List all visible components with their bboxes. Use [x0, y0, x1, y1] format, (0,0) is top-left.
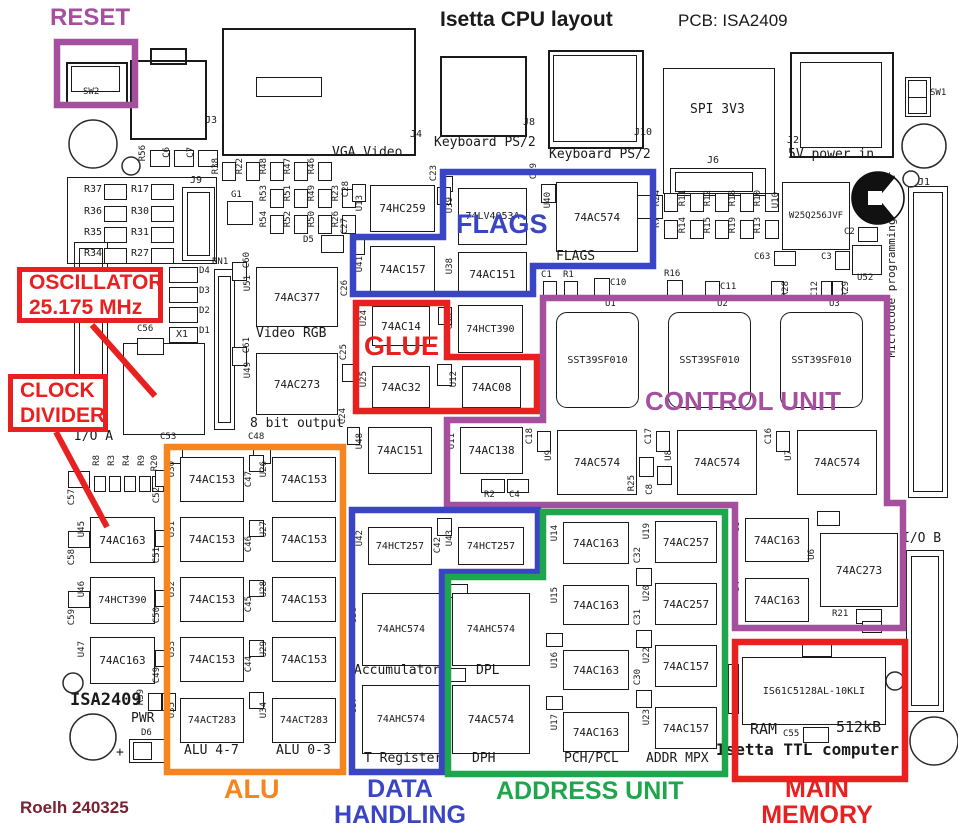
silkscreen-text: R24 [653, 190, 662, 206]
silkscreen-text: C6 [163, 147, 172, 158]
silkscreen-text: R16 [664, 270, 680, 279]
region-label-line: ALU [224, 775, 280, 803]
silkscreen-text: R31 [131, 228, 149, 239]
chip-part-label: 74AHC574 [377, 624, 425, 635]
silkscreen-text: C32 [634, 547, 643, 563]
silkscreen-text: D2 [199, 307, 210, 316]
mounting-hole [902, 124, 946, 168]
silkscreen-text: C48 [248, 433, 264, 442]
chip-part-label: 74AC163 [754, 534, 800, 547]
silkscreen-text: C50 [153, 607, 162, 623]
chip-part-label: IS61C5128AL-10KLI [763, 686, 865, 697]
chip-part-label: 74AC574 [468, 713, 514, 726]
chip-u35: 74ACT283 [180, 698, 244, 743]
silkscreen-text: FLAGS [556, 250, 595, 264]
silkscreen-text: U19 [643, 523, 652, 539]
chip-u29: 74AC153 [272, 637, 336, 682]
silkscreen-text: C8 [646, 484, 655, 495]
pcb-layout-diagram: Isetta CPU layout PCB: ISA2409 Roelh 240… [0, 0, 958, 838]
silkscreen-text: U36 [350, 607, 359, 623]
silkscreen-text: R4 [123, 455, 132, 466]
passive-component [169, 287, 198, 303]
silkscreen-text: C7 [187, 147, 196, 158]
chip-u22: 74AC157 [655, 645, 717, 687]
silkscreen-text: R13 [754, 217, 763, 233]
passive-component [137, 338, 164, 355]
silkscreen-text: U33 [168, 641, 177, 657]
connector-outline [123, 343, 205, 435]
chip-u11: 74AC138 [460, 427, 523, 474]
chip-part-label: 74AC273 [836, 564, 882, 577]
silkscreen-text: U6 [808, 549, 817, 560]
silkscreen-text: T Register [364, 752, 442, 766]
passive-component [656, 431, 670, 452]
silkscreen-text: U35 [168, 702, 177, 718]
silkscreen-text: C26 [341, 280, 350, 296]
chip-u45: 74AC163 [90, 517, 155, 563]
chip-part-label: 74AC163 [99, 654, 145, 667]
silkscreen-text: J6 [707, 156, 719, 167]
callout-line: CLOCK [20, 378, 96, 403]
passive-component [715, 220, 729, 239]
chip-part-label: 74AC163 [573, 599, 619, 612]
silkscreen-text: C46 [245, 536, 254, 552]
silkscreen-text: X1 [176, 330, 188, 341]
silkscreen-text: R7 [653, 217, 662, 228]
region-label-reset: RESET [50, 5, 130, 30]
silkscreen-text: R53 [260, 185, 269, 201]
silkscreen-text: C2 [844, 228, 855, 237]
silkscreen-text: U2 [717, 300, 728, 309]
chip-u26: 74AC153 [272, 457, 336, 502]
silkscreen-text: R25 [628, 475, 637, 491]
chip-u18: 74AHC574 [452, 593, 530, 666]
region-label-address-unit: ADDRESS UNIT [496, 778, 684, 804]
passive-component [151, 184, 174, 200]
chip-u40: 74AC574 [556, 182, 638, 252]
silkscreen-text: C29 [530, 163, 539, 179]
silkscreen-text: R47 [284, 158, 293, 174]
silkscreen-text: C3 [821, 253, 832, 262]
passive-component [109, 476, 121, 492]
silkscreen-text: R1 [563, 271, 574, 280]
chip-u8: 74AC574 [677, 430, 757, 495]
region-label-data-handling: DATAHANDLING [330, 776, 470, 829]
callout-oscillator: OSCILLATOR25.175 MHz [17, 267, 163, 323]
page-title: Isetta CPU layout [440, 8, 613, 32]
passive-component [546, 696, 563, 710]
chip-part-label: 74ACT283 [188, 715, 236, 726]
region-label-line: CONTROL UNIT [645, 388, 841, 415]
silkscreen-text: U25 [360, 371, 369, 387]
silkscreen-text: I/O B [902, 532, 941, 546]
mounting-hole [70, 714, 116, 760]
passive-component [690, 220, 704, 239]
chip-part-label: 74AC153 [189, 533, 235, 546]
silkscreen-text: U46 [78, 581, 87, 597]
silkscreen-text: C31 [634, 609, 643, 625]
silkscreen-text: R51 [284, 185, 293, 201]
connector-outline [218, 276, 231, 423]
passive-component [639, 457, 654, 477]
passive-component [657, 466, 672, 485]
silkscreen-text: C53 [160, 433, 176, 442]
silkscreen-text: U48 [356, 433, 365, 449]
chip-part-label: 74AC153 [189, 653, 235, 666]
region-label-line: DATA [330, 776, 470, 802]
silkscreen-text: + [116, 746, 124, 760]
passive-component [543, 281, 557, 296]
silkscreen-text: I/O A [74, 430, 113, 444]
silkscreen-text: ALU 0-3 [276, 744, 331, 758]
passive-component [690, 193, 704, 212]
chip-u50: 74HCT390 [458, 305, 523, 353]
passive-component [802, 643, 832, 657]
chip-part-label: 74AC273 [274, 378, 320, 391]
silkscreen-text: SW2 [83, 88, 99, 97]
silkscreen-text: R39 [137, 689, 146, 705]
silkscreen-text: C57 [68, 489, 77, 505]
passive-component [858, 227, 878, 242]
silkscreen-text: C55 [783, 730, 799, 739]
connector-outline [150, 48, 187, 65]
silkscreen-text: DPH [472, 752, 495, 766]
passive-component [270, 189, 284, 208]
chip-u32: 74AC153 [180, 577, 244, 622]
passive-component [667, 280, 683, 299]
callout-line: OSCILLATOR [29, 270, 151, 295]
silkscreen-text: DPL [476, 664, 499, 678]
connector-outline [800, 62, 882, 148]
passive-component [852, 245, 882, 275]
silkscreen-text: U47 [78, 641, 87, 657]
chip-u19: 74AC257 [655, 521, 717, 563]
silkscreen-text: J8 [523, 118, 535, 129]
silkscreen-text: R35 [84, 228, 102, 239]
chip-u6: 74AC273 [820, 533, 898, 607]
chip-u25: 74AC32 [372, 366, 430, 408]
chip-u10: W25Q256JVF [782, 182, 850, 250]
silkscreen-text: RAM [750, 722, 777, 738]
silkscreen-text: U7 [785, 450, 794, 461]
silkscreen-text: R46 [308, 158, 317, 174]
passive-component [776, 431, 790, 452]
silkscreen-text: U14 [551, 525, 560, 541]
chip-part-label: 74AHC574 [467, 624, 515, 635]
chip-u12: 74AC08 [462, 366, 521, 408]
passive-component [104, 227, 127, 243]
silkscreen-text: R36 [84, 207, 102, 218]
chip-u49: 74AC273 [256, 353, 338, 415]
silkscreen-text: C17 [645, 428, 654, 444]
chip-u17: 74AC163 [563, 712, 629, 752]
silkscreen-text: U11 [448, 433, 457, 449]
passive-component [765, 220, 779, 239]
passive-component [740, 193, 754, 212]
silkscreen-text: C60 [243, 252, 252, 268]
silkscreen-text: U8 [665, 450, 674, 461]
silkscreen-text: C11 [720, 283, 736, 292]
silkscreen-text: U5 [733, 521, 742, 532]
silkscreen-text: R10 [754, 190, 763, 206]
connector-outline [908, 80, 927, 98]
chip-part-label: 74AC574 [814, 456, 860, 469]
passive-component [318, 189, 332, 208]
silkscreen-text: C25 [340, 344, 349, 360]
chip-part-label: 74AC157 [663, 722, 709, 735]
silkscreen-text: R27 [131, 249, 149, 260]
silkscreen-text: VGA Video [332, 146, 402, 160]
silkscreen-text: U20 [643, 585, 652, 601]
silkscreen-text: J1 [918, 178, 930, 189]
chip-part-label: 74AC257 [663, 598, 709, 611]
mounting-hole [69, 120, 117, 168]
chip-part-label: SST39SF010 [791, 355, 851, 366]
chip-part-label: 74AC151 [469, 268, 515, 281]
silkscreen-text: D4 [199, 267, 210, 276]
passive-component [664, 220, 678, 239]
passive-component [294, 189, 308, 208]
region-label-control-unit: CONTROL UNIT [645, 388, 841, 415]
passive-component [246, 162, 260, 181]
chip-part-label: 74HC259 [379, 202, 425, 215]
region-label-line: MAIN [752, 776, 882, 802]
silkscreen-text: U51 [244, 275, 253, 291]
chip-u1: SST39SF010 [556, 312, 639, 408]
silkscreen-text: C42 [434, 537, 443, 553]
chip-u42: 74HCT257 [368, 527, 432, 565]
silkscreen-text: U50 [446, 313, 455, 329]
chip-part-label: 74HCT390 [98, 595, 146, 606]
silkscreen-text: Keyboard PS/2 [549, 148, 651, 162]
silkscreen-text: R12 [704, 190, 713, 206]
silkscreen-text: R17 [131, 185, 149, 196]
silkscreen-text: C30 [634, 669, 643, 685]
silkscreen-text: RN1 [212, 258, 228, 267]
passive-component [546, 633, 563, 647]
passive-component [68, 471, 90, 488]
silkscreen-text: U42 [356, 530, 365, 546]
silkscreen-text: Accumulator [354, 664, 440, 678]
silkscreen-text: D1 [199, 327, 210, 336]
silkscreen-text: C9 [881, 213, 892, 222]
chip-part-label: 74AC163 [573, 664, 619, 677]
silkscreen-text: R23 [332, 185, 341, 201]
silkscreen-text: C44 [245, 656, 254, 672]
passive-component [862, 621, 882, 633]
passive-component [821, 281, 832, 300]
passive-component [139, 476, 151, 492]
passive-component [594, 278, 610, 296]
chip-u46: 74HCT390 [90, 577, 155, 624]
chip-part-label: SST39SF010 [679, 355, 739, 366]
silkscreen-text: Microcode programming header [886, 172, 897, 357]
silkscreen-text: C49 [153, 667, 162, 683]
chip-ram: IS61C5128AL-10KLI [742, 657, 886, 725]
silkscreen-text: R19 [729, 217, 738, 233]
silkscreen-text: U40 [544, 192, 553, 208]
silkscreen-text: C61 [243, 337, 252, 353]
silkscreen-text: U45 [78, 521, 87, 537]
passive-component [104, 248, 127, 264]
passive-component [133, 742, 152, 760]
passive-component [351, 237, 365, 255]
silkscreen-text: R49 [308, 185, 317, 201]
credit-label: Roelh 240325 [20, 798, 129, 818]
chip-part-label: 74AC138 [468, 444, 514, 457]
callout-line: DIVIDER [20, 403, 96, 428]
silkscreen-text: C63 [754, 253, 770, 262]
passive-component [169, 267, 198, 283]
chip-part-label: 74AC377 [274, 291, 320, 304]
chip-u33: 74AC153 [180, 637, 244, 682]
passive-component [294, 215, 308, 234]
silkscreen-text: D6 [141, 729, 152, 738]
silkscreen-text: R15 [704, 217, 713, 233]
chip-u16: 74AC163 [563, 650, 629, 690]
silkscreen-text: ADDR MPX [646, 752, 709, 766]
chip-u4: 74AC163 [745, 578, 809, 622]
silkscreen-text: C58 [68, 549, 77, 565]
chip-u38: 74AC151 [458, 252, 527, 296]
chip-u36: 74AHC574 [362, 593, 440, 666]
chip-u48: 74AC151 [368, 427, 432, 474]
connector-outline [908, 97, 927, 114]
silkscreen-text: R9 [138, 455, 147, 466]
silkscreen-text: U34 [260, 702, 269, 718]
silkscreen-text: U49 [244, 362, 253, 378]
silkscreen-text: J9 [190, 176, 202, 187]
chip-part-label: 74AHC574 [377, 714, 425, 725]
silkscreen-text: U21 [440, 697, 449, 713]
passive-component [817, 511, 840, 526]
region-label-line: HANDLING [330, 802, 470, 828]
connector-outline [675, 172, 753, 192]
chip-u34: 74ACT283 [272, 698, 336, 743]
passive-component [151, 248, 174, 264]
passive-component [636, 630, 652, 648]
silkscreen-text: U10 [772, 192, 781, 208]
chip-u9: 74AC574 [557, 430, 637, 495]
region-label-glue: GLUE [364, 332, 439, 360]
chip-part-label: 74AC574 [694, 456, 740, 469]
silkscreen-text: U15 [551, 587, 560, 603]
connector-outline [913, 192, 943, 492]
chip-part-label: 74AC08 [472, 381, 512, 394]
silkscreen-text: Isetta TTL computer [716, 742, 899, 759]
silkscreen-text: U24 [360, 310, 369, 326]
chip-part-label: 74HCT257 [376, 541, 424, 552]
chip-u13: 74HC259 [370, 185, 435, 232]
silkscreen-text: 8 bit output [250, 417, 344, 431]
chip-part-label: 74AC153 [281, 593, 327, 606]
silkscreen-text: R21 [832, 610, 848, 619]
chip-part-label: 74AC157 [379, 263, 425, 276]
chip-u21: 74AC574 [452, 685, 530, 754]
silkscreen-text: U27 [260, 521, 269, 537]
passive-component [222, 162, 236, 181]
passive-component [318, 215, 332, 234]
chip-part-label: 74AC153 [281, 473, 327, 486]
silkscreen-text: R22 [236, 158, 245, 174]
silkscreen-text: U4 [733, 581, 742, 592]
silkscreen-text: R37 [84, 185, 102, 196]
silkscreen-text: R2 [484, 491, 495, 500]
silkscreen-text: J4 [410, 130, 422, 141]
passive-component [94, 476, 106, 492]
chip-u28: 74AC153 [272, 577, 336, 622]
silkscreen-text: U22 [643, 647, 652, 663]
silkscreen-text: C18 [526, 428, 535, 444]
silkscreen-text: Keyboard PS/2 [434, 136, 536, 150]
chip-part-label: 74AC257 [663, 536, 709, 549]
chip-part-label: 74AC153 [189, 473, 235, 486]
passive-component [774, 251, 796, 266]
passive-component [636, 568, 652, 586]
silkscreen-text: C4 [509, 491, 520, 500]
passive-component [227, 201, 253, 225]
silkscreen-text: R18 [729, 190, 738, 206]
passive-component [537, 431, 551, 452]
chip-u41: 74AC157 [370, 246, 435, 292]
passive-component [835, 251, 850, 270]
passive-component [270, 215, 284, 234]
chip-part-label: 74AC163 [754, 594, 800, 607]
silkscreen-text: C27 [341, 218, 350, 234]
mounting-hole [910, 717, 958, 765]
silkscreen-text: R20 [151, 455, 160, 471]
silkscreen-text: R54 [260, 211, 269, 227]
silkscreen-text: C1 [541, 271, 552, 280]
silkscreen-text: J3 [205, 116, 217, 127]
chip-part-label: 74ACT283 [280, 715, 328, 726]
connector-outline [440, 56, 527, 137]
silkscreen-text: C59 [68, 609, 77, 625]
chip-u30: 74AC153 [180, 457, 244, 502]
silkscreen-text: J10 [634, 128, 652, 139]
chip-part-label: SST39SF010 [567, 355, 627, 366]
chip-part-label: W25Q256JVF [789, 211, 843, 221]
silkscreen-text: U31 [168, 521, 177, 537]
passive-component [342, 364, 355, 382]
silkscreen-text: R3 [108, 455, 117, 466]
silkscreen-text: C47 [245, 471, 254, 487]
silkscreen-text: U39 [446, 197, 455, 213]
pcb-label: PCB: ISA2409 [678, 11, 788, 31]
silkscreen-text: C51 [153, 547, 162, 563]
silkscreen-text: U17 [551, 714, 560, 730]
silkscreen-text: C23 [430, 165, 439, 181]
silkscreen-text: U9 [545, 450, 554, 461]
passive-component [636, 690, 652, 708]
silkscreen-text: R50 [308, 211, 317, 227]
silkscreen-text: U32 [168, 581, 177, 597]
region-label-main-memory: MAINMEMORY [752, 776, 882, 829]
region-label-flags: FLAGS [456, 210, 548, 238]
region-label-line: GLUE [364, 332, 439, 360]
chip-u27: 74AC153 [272, 517, 336, 562]
chip-part-label: 74HCT257 [467, 541, 515, 552]
passive-component [705, 281, 720, 300]
region-label-line: ADDRESS UNIT [496, 778, 684, 804]
silkscreen-text: SPI 3V3 [690, 103, 745, 117]
silkscreen-text: C16 [765, 428, 774, 444]
connector-outline [553, 55, 637, 142]
silkscreen-text: U52 [857, 274, 873, 283]
silkscreen-text: U41 [356, 256, 365, 272]
silkscreen-text: D5 [303, 236, 314, 245]
silkscreen-text: U30 [168, 461, 177, 477]
